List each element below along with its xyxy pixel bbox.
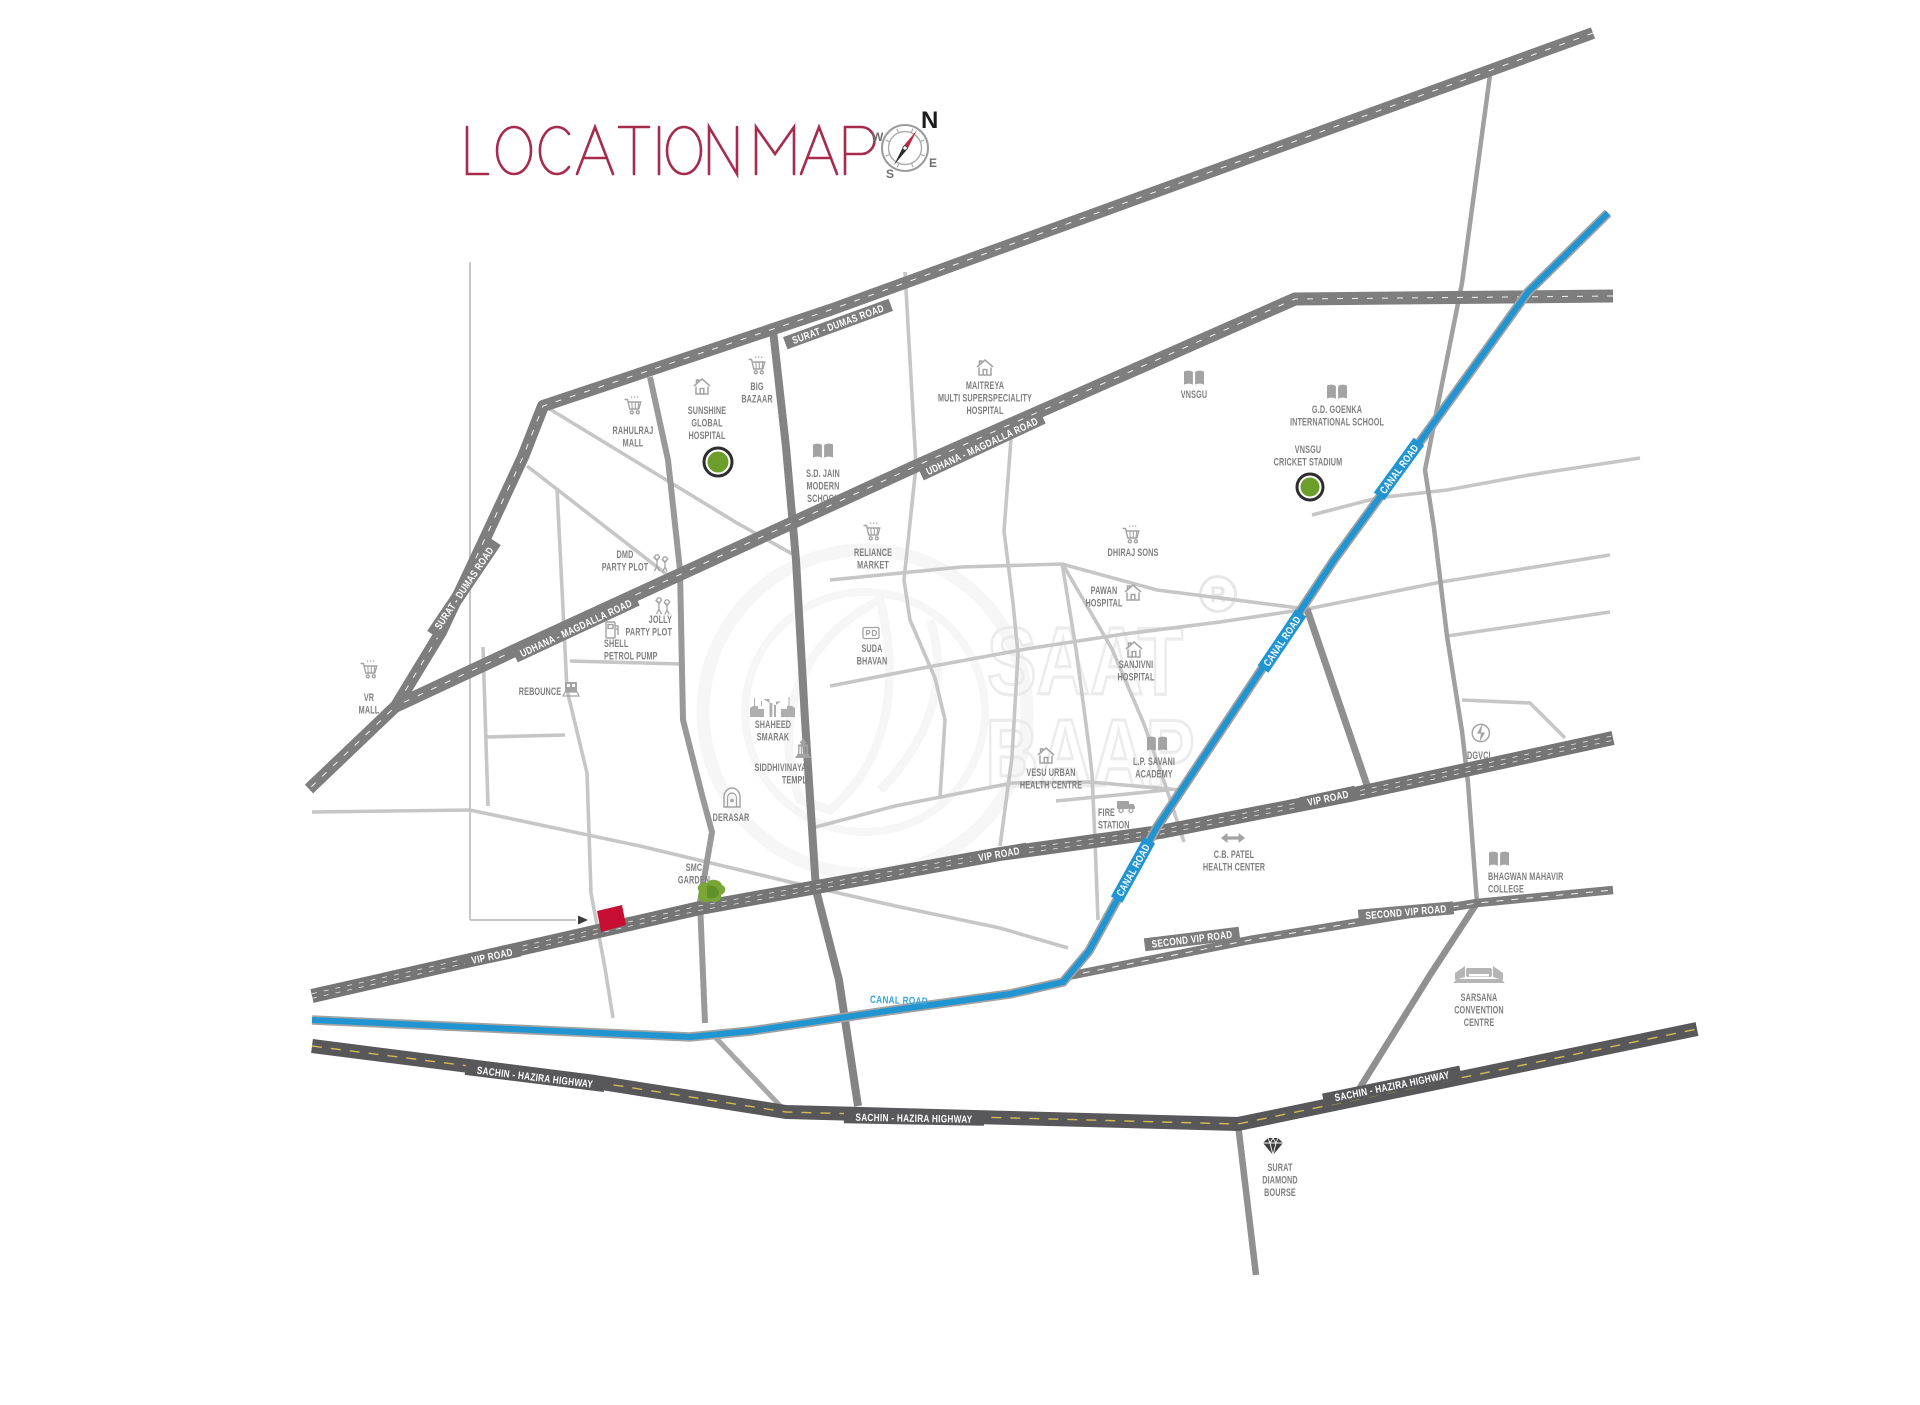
- svg-text:VNSGU: VNSGU: [1295, 444, 1322, 456]
- svg-text:DERASAR: DERASAR: [713, 812, 750, 824]
- svg-text:FIRE: FIRE: [1098, 807, 1115, 819]
- svg-text:SARSANA: SARSANA: [1461, 992, 1498, 1004]
- svg-text:S: S: [886, 167, 894, 181]
- svg-text:TEMPLE: TEMPLE: [782, 774, 812, 786]
- svg-text:HOSPITAL: HOSPITAL: [966, 405, 1003, 417]
- svg-text:HEALTH CENTRE: HEALTH CENTRE: [1020, 779, 1082, 791]
- svg-text:BOURSE: BOURSE: [1264, 1187, 1296, 1199]
- svg-text:PAWAN: PAWAN: [1091, 585, 1118, 597]
- svg-text:MULTI SUPERSPECIALITY: MULTI SUPERSPECIALITY: [938, 392, 1032, 404]
- svg-text:W: W: [872, 130, 884, 144]
- svg-text:BHAVAN: BHAVAN: [857, 655, 888, 667]
- svg-text:PARTY PLOT: PARTY PLOT: [625, 626, 672, 638]
- svg-text:SHELL: SHELL: [604, 638, 629, 650]
- svg-text:N: N: [921, 107, 938, 134]
- svg-text:HOSPITAL: HOSPITAL: [1117, 671, 1154, 683]
- svg-text:VNSGU: VNSGU: [1181, 389, 1208, 401]
- svg-text:RAHULRAJ: RAHULRAJ: [613, 425, 654, 437]
- svg-text:C.B. PATEL: C.B. PATEL: [1214, 849, 1255, 861]
- svg-text:SHAHEED: SHAHEED: [755, 719, 791, 731]
- svg-text:PARTY PLOT: PARTY PLOT: [602, 561, 649, 573]
- svg-text:RELIANCE: RELIANCE: [854, 547, 892, 559]
- svg-text:SUDA: SUDA: [861, 643, 882, 655]
- svg-text:SMC: SMC: [686, 862, 703, 874]
- svg-text:SACHIN - HAZIRA HIGHWAY: SACHIN - HAZIRA HIGHWAY: [855, 1111, 973, 1125]
- svg-text:COLLEGE: COLLEGE: [1488, 883, 1524, 895]
- svg-text:DHIRAJ SONS: DHIRAJ SONS: [1108, 547, 1159, 559]
- svg-text:SCHOOL: SCHOOL: [807, 493, 839, 505]
- svg-text:L.P. SAVANI: L.P. SAVANI: [1133, 756, 1175, 768]
- svg-text:JOLLY: JOLLY: [649, 614, 673, 626]
- svg-text:SANJIVNI: SANJIVNI: [1119, 659, 1153, 671]
- svg-text:GLOBAL: GLOBAL: [691, 417, 722, 429]
- svg-text:STATION: STATION: [1098, 819, 1130, 831]
- svg-text:MARKET: MARKET: [857, 559, 889, 571]
- svg-text:CRICKET STADIUM: CRICKET STADIUM: [1274, 456, 1343, 468]
- svg-text:VESU URBAN: VESU URBAN: [1026, 767, 1075, 779]
- svg-text:MAITREYA: MAITREYA: [966, 380, 1004, 392]
- svg-text:INTERNATIONAL SCHOOL: INTERNATIONAL SCHOOL: [1290, 416, 1384, 428]
- svg-text:HEALTH CENTER: HEALTH CENTER: [1203, 861, 1265, 873]
- svg-text:R: R: [1210, 582, 1226, 607]
- svg-text:SUNSHINE: SUNSHINE: [688, 405, 726, 417]
- svg-text:PETROL PUMP: PETROL PUMP: [604, 650, 658, 662]
- svg-text:REBOUNCE: REBOUNCE: [519, 686, 562, 698]
- svg-text:MODERN: MODERN: [807, 480, 840, 492]
- svg-text:S.D. JAIN: S.D. JAIN: [806, 468, 840, 480]
- svg-text:DGVCL: DGVCL: [1467, 750, 1493, 762]
- svg-text:ACADEMY: ACADEMY: [1135, 768, 1173, 780]
- svg-text:G.D. GOENKA: G.D. GOENKA: [1312, 404, 1362, 416]
- svg-text:DIAMOND: DIAMOND: [1262, 1174, 1298, 1186]
- svg-text:CENTRE: CENTRE: [1464, 1017, 1495, 1029]
- svg-text:DMD: DMD: [617, 549, 634, 561]
- svg-text:SIDDHIVINAYAK: SIDDHIVINAYAK: [754, 762, 812, 774]
- svg-text:VR: VR: [364, 692, 374, 704]
- svg-text:BAZAAR: BAZAAR: [741, 393, 772, 405]
- svg-text:HOSPITAL: HOSPITAL: [1085, 597, 1122, 609]
- svg-text:CANAL ROAD: CANAL ROAD: [870, 993, 928, 1007]
- svg-text:SMARAK: SMARAK: [757, 731, 790, 743]
- svg-text:HOSPITAL: HOSPITAL: [688, 430, 725, 442]
- svg-text:CONVENTION: CONVENTION: [1454, 1004, 1504, 1016]
- svg-text:E: E: [929, 156, 937, 170]
- svg-text:MALL: MALL: [623, 437, 644, 449]
- svg-text:MALL: MALL: [359, 704, 380, 716]
- svg-text:BIG: BIG: [750, 381, 763, 393]
- svg-text:SURAT: SURAT: [1267, 1162, 1292, 1174]
- svg-text:BHAGWAN MAHAVIR: BHAGWAN MAHAVIR: [1488, 871, 1564, 883]
